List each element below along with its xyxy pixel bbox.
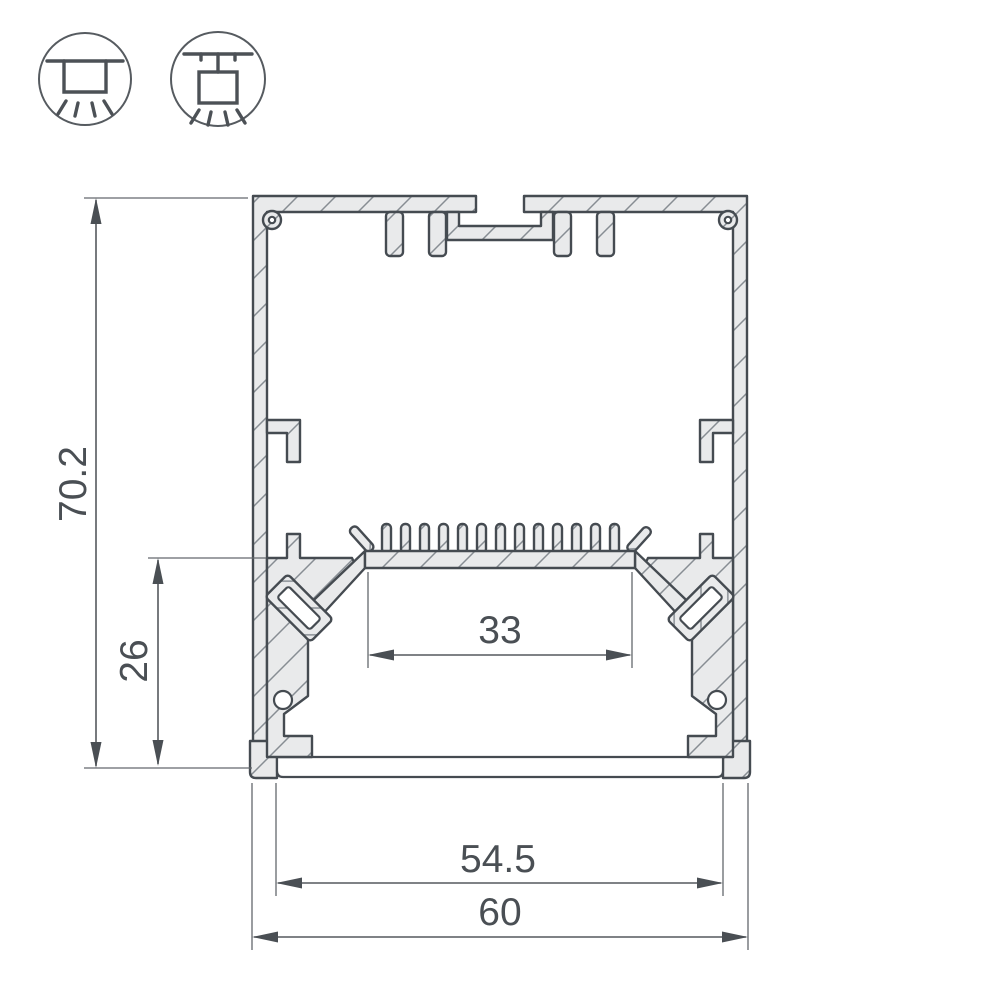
corner-mass: [646, 534, 733, 757]
hanging-rib: [386, 212, 403, 256]
drawing-page: 70.2 26 33 54.5: [0, 0, 1000, 1000]
dim-label-led-platform-width: 33: [478, 609, 521, 652]
arrowhead-right: [697, 878, 723, 889]
arrowhead-right: [606, 650, 632, 661]
screw-channel-hole: [274, 691, 292, 709]
heatsink-end-fin: [348, 525, 375, 553]
screw-port-hole: [269, 217, 275, 223]
heatsink-fins: [382, 524, 619, 553]
dim-label-mount-depth: 26: [113, 639, 156, 682]
arrowhead-right: [722, 932, 748, 943]
corner-mass: [267, 534, 354, 757]
pendant-mount-icon: [171, 32, 265, 126]
dim-inner-width: 54.5: [276, 783, 723, 896]
screw-channel-hole: [708, 691, 726, 709]
mount-icons: [39, 32, 265, 126]
arrowhead-up: [91, 198, 102, 224]
led-plate: [365, 551, 635, 568]
arrowhead-left: [368, 650, 394, 661]
dim-mount-depth: 26: [113, 558, 266, 766]
hanging-rib: [429, 212, 446, 256]
arrowhead-down: [153, 740, 164, 766]
wall-hook: [267, 420, 300, 462]
dim-label-inner-width: 54.5: [460, 838, 536, 881]
diffuser-plate: [277, 757, 723, 777]
hanging-rib: [554, 212, 571, 256]
heatsink-plate: [348, 524, 652, 568]
profile-cross-section: [250, 196, 750, 778]
screw-port-hole: [725, 217, 731, 223]
hanging-rib: [597, 212, 614, 256]
dim-label-overall-width: 60: [478, 891, 521, 934]
arrowhead-left: [276, 878, 302, 889]
arrowhead-left: [252, 932, 278, 943]
surface-mount-icon: [39, 33, 131, 125]
dim-led-platform-width: 33: [368, 572, 632, 668]
dim-label-overall-height: 70.2: [52, 446, 95, 522]
suspension-channel: [447, 212, 553, 240]
heatsink-end-fin: [626, 526, 653, 554]
arrowhead-down: [91, 742, 102, 768]
arrowhead-up: [153, 558, 164, 584]
profile-drawing: 70.2 26 33 54.5: [0, 0, 1000, 1000]
wall-hook: [700, 420, 733, 462]
